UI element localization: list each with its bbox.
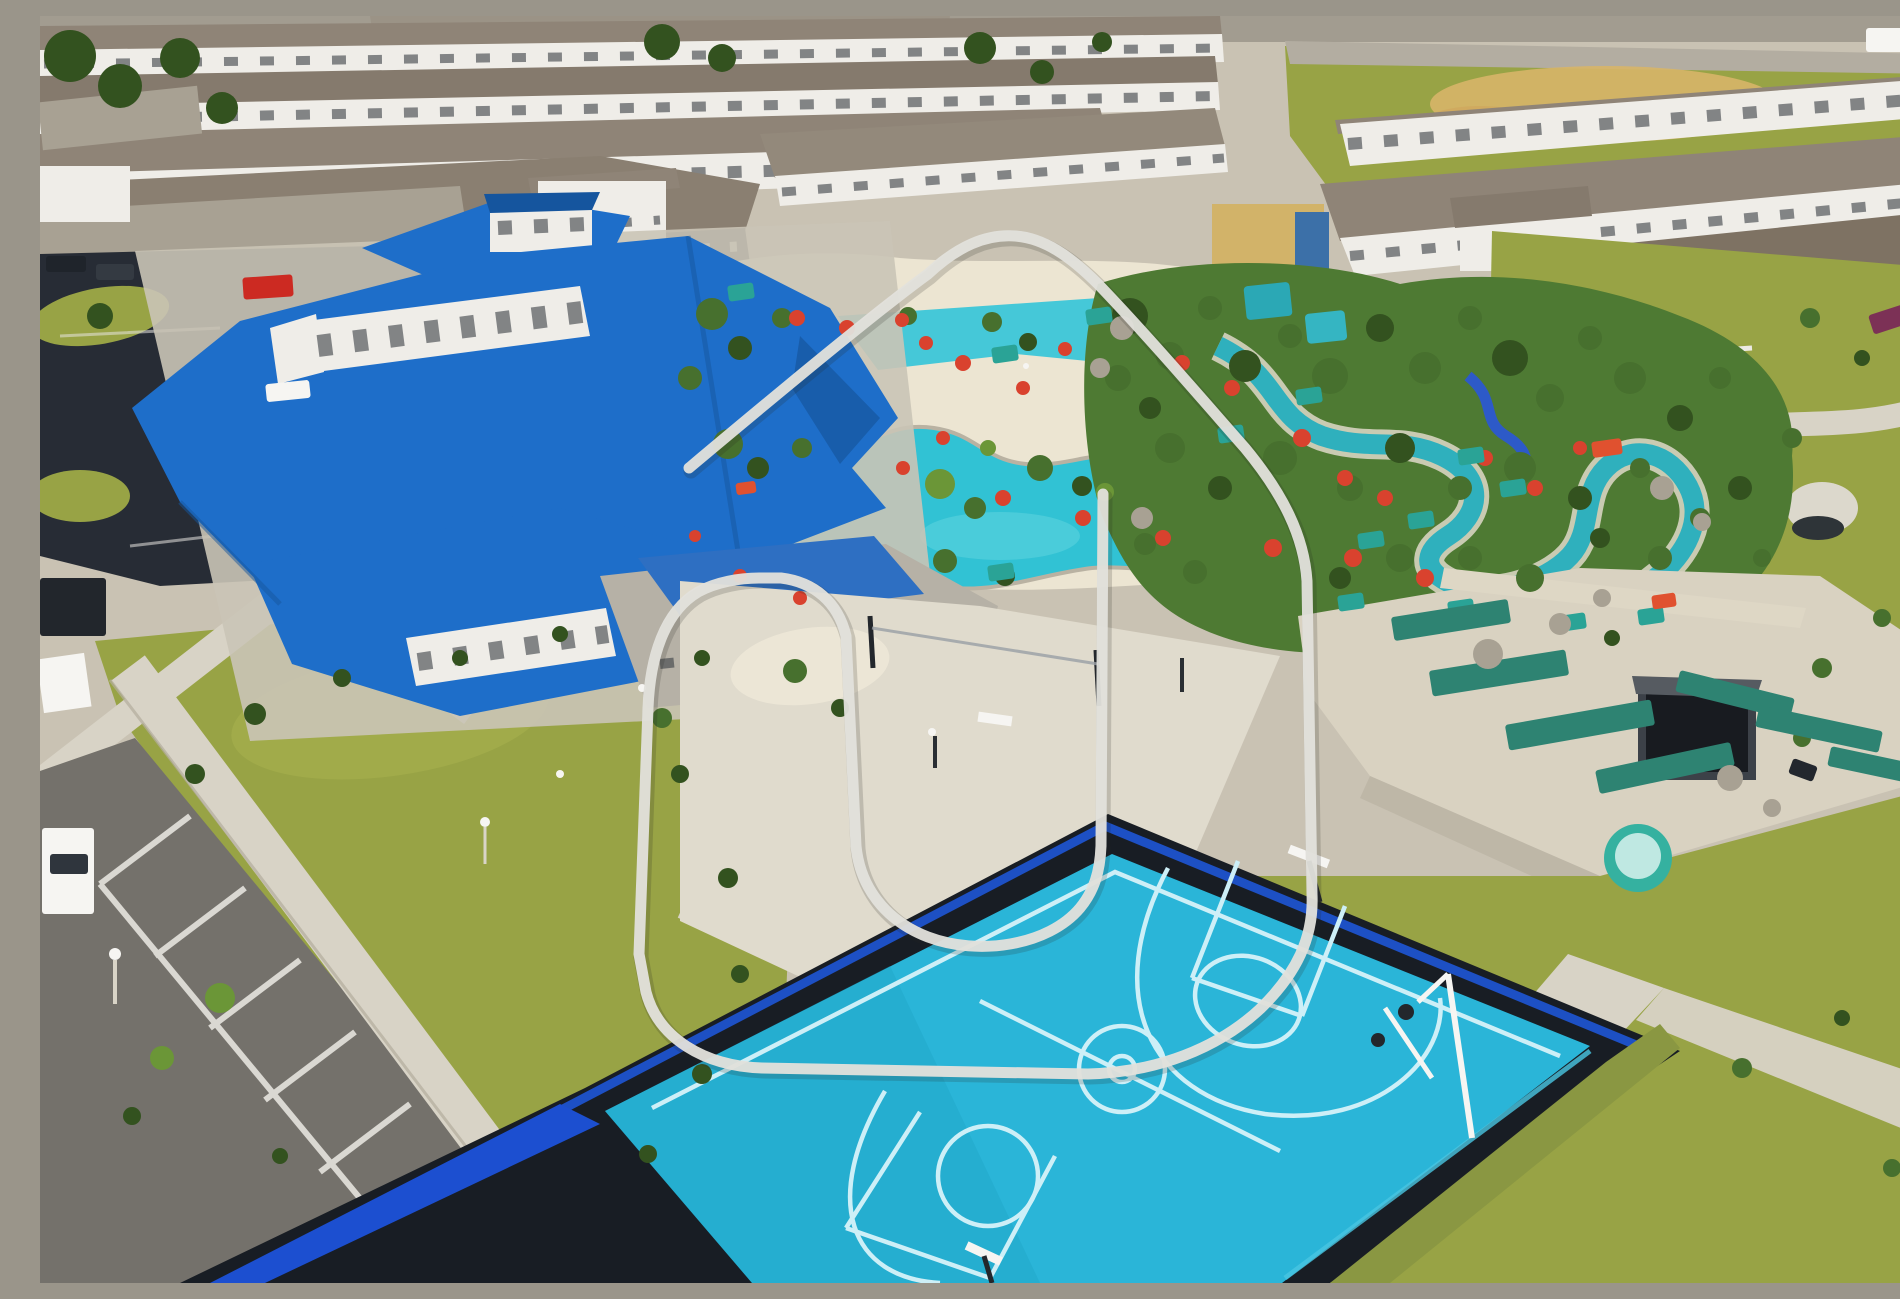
light-pole <box>928 728 936 736</box>
tree <box>1278 324 1302 348</box>
umbrella <box>1075 510 1091 526</box>
tree <box>694 650 710 666</box>
tree <box>1139 397 1161 419</box>
palm-tree <box>150 1046 174 1070</box>
tree <box>1183 560 1207 584</box>
grotto-shadow <box>1792 516 1844 540</box>
car-dark <box>46 256 86 272</box>
tree <box>87 303 113 329</box>
tree <box>1728 476 1752 500</box>
umbrella <box>1377 490 1393 506</box>
cupola-cap <box>484 192 600 213</box>
tree <box>44 30 96 82</box>
umbrella <box>1293 429 1311 447</box>
tree <box>783 659 807 683</box>
tree <box>1854 350 1870 366</box>
tree <box>1667 405 1693 431</box>
umbrella <box>1344 549 1362 567</box>
tree <box>1536 384 1564 412</box>
tree <box>933 549 957 573</box>
umbrella <box>689 530 701 542</box>
tree <box>1709 367 1731 389</box>
flood-light-head <box>1398 1004 1414 1020</box>
tree <box>1834 1010 1850 1026</box>
boulder <box>1549 613 1571 635</box>
tree <box>747 457 769 479</box>
tree <box>1208 476 1232 500</box>
umbrella <box>1573 441 1587 455</box>
umbrella <box>1016 381 1030 395</box>
boulder <box>1717 765 1743 791</box>
car-red <box>242 274 293 299</box>
light-pole <box>556 770 564 778</box>
tree <box>1568 486 1592 510</box>
tree <box>1812 658 1832 678</box>
umbrella <box>896 461 910 475</box>
tree <box>1329 567 1351 589</box>
umbrella <box>1337 470 1353 486</box>
tree <box>964 32 996 64</box>
cupola-windows <box>498 224 586 228</box>
umbrella <box>1264 539 1282 557</box>
tree <box>1155 433 1185 463</box>
shrub <box>272 1148 288 1164</box>
tree <box>98 64 142 108</box>
tree <box>1732 1058 1752 1078</box>
glass-facade <box>1295 212 1329 274</box>
tree <box>644 24 680 60</box>
slide-tower <box>1305 310 1348 344</box>
umbrella <box>995 490 1011 506</box>
car-gray <box>96 264 134 280</box>
tree <box>1458 306 1482 330</box>
tree <box>1072 476 1092 496</box>
boulder <box>1131 507 1153 529</box>
car-windshield <box>50 854 88 874</box>
shrub <box>452 650 468 666</box>
boulder <box>1693 513 1711 531</box>
umbrella <box>895 313 909 327</box>
tree <box>1614 362 1646 394</box>
tree <box>1229 350 1261 382</box>
tree <box>1366 314 1394 342</box>
tree <box>1409 352 1441 384</box>
small-building <box>40 166 130 222</box>
flood-light-head <box>1371 1033 1385 1047</box>
tree <box>1800 308 1820 328</box>
tree <box>1134 533 1156 555</box>
aerial-photo-canvas <box>40 16 1900 1283</box>
tree <box>1092 32 1112 52</box>
net-post <box>870 616 873 668</box>
shade-canopy <box>40 653 92 713</box>
tree <box>1578 326 1602 350</box>
tree <box>792 438 812 458</box>
tree <box>1604 630 1620 646</box>
tree <box>1019 333 1037 351</box>
boulder <box>1763 799 1781 817</box>
shrub <box>333 669 351 687</box>
boulder <box>1473 639 1503 669</box>
palm-tree <box>205 983 235 1013</box>
tree <box>678 366 702 390</box>
tree <box>160 38 200 78</box>
shrub <box>639 1145 657 1163</box>
tree <box>1782 428 1802 448</box>
shrub <box>123 1107 141 1125</box>
tree <box>1448 476 1472 500</box>
boulder <box>1090 358 1110 378</box>
van-dark <box>40 578 106 636</box>
tree <box>1492 340 1528 376</box>
tree <box>964 497 986 519</box>
slide-tower <box>1243 282 1292 321</box>
tree <box>1630 458 1650 478</box>
shrub <box>718 868 738 888</box>
tree <box>1590 528 1610 548</box>
tree <box>696 298 728 330</box>
van-white <box>1866 28 1900 52</box>
shrub <box>552 626 568 642</box>
shrub <box>244 703 266 725</box>
tree <box>1753 549 1771 567</box>
tree <box>728 336 752 360</box>
umbrella <box>919 336 933 350</box>
umbrella <box>1416 569 1434 587</box>
spa-pool-water <box>1615 833 1661 879</box>
umbrella <box>1058 342 1072 356</box>
boulder <box>1593 589 1611 607</box>
tree <box>1458 546 1482 570</box>
light-pole <box>1023 363 1029 369</box>
shrub <box>185 764 205 784</box>
tree <box>1198 296 1222 320</box>
light-pole <box>480 817 490 827</box>
umbrella <box>936 431 950 445</box>
tree <box>1030 60 1054 84</box>
tree <box>1385 433 1415 463</box>
tree <box>1027 455 1053 481</box>
umbrella <box>1527 480 1543 496</box>
light-pole <box>109 948 121 960</box>
tree <box>925 469 955 499</box>
tree <box>1516 564 1544 592</box>
aerial-photo <box>40 16 1900 1283</box>
shrub <box>731 965 749 983</box>
tree <box>1648 546 1672 570</box>
umbrella <box>789 310 805 326</box>
tree <box>206 92 238 124</box>
umbrella <box>1224 380 1240 396</box>
tree <box>1873 609 1891 627</box>
umbrella <box>1155 530 1171 546</box>
tree <box>1386 544 1414 572</box>
umbrella <box>955 355 971 371</box>
shrub <box>671 765 689 783</box>
tree <box>708 44 736 72</box>
palm-tree <box>980 440 996 456</box>
tree <box>982 312 1002 332</box>
boulder <box>1650 476 1674 500</box>
